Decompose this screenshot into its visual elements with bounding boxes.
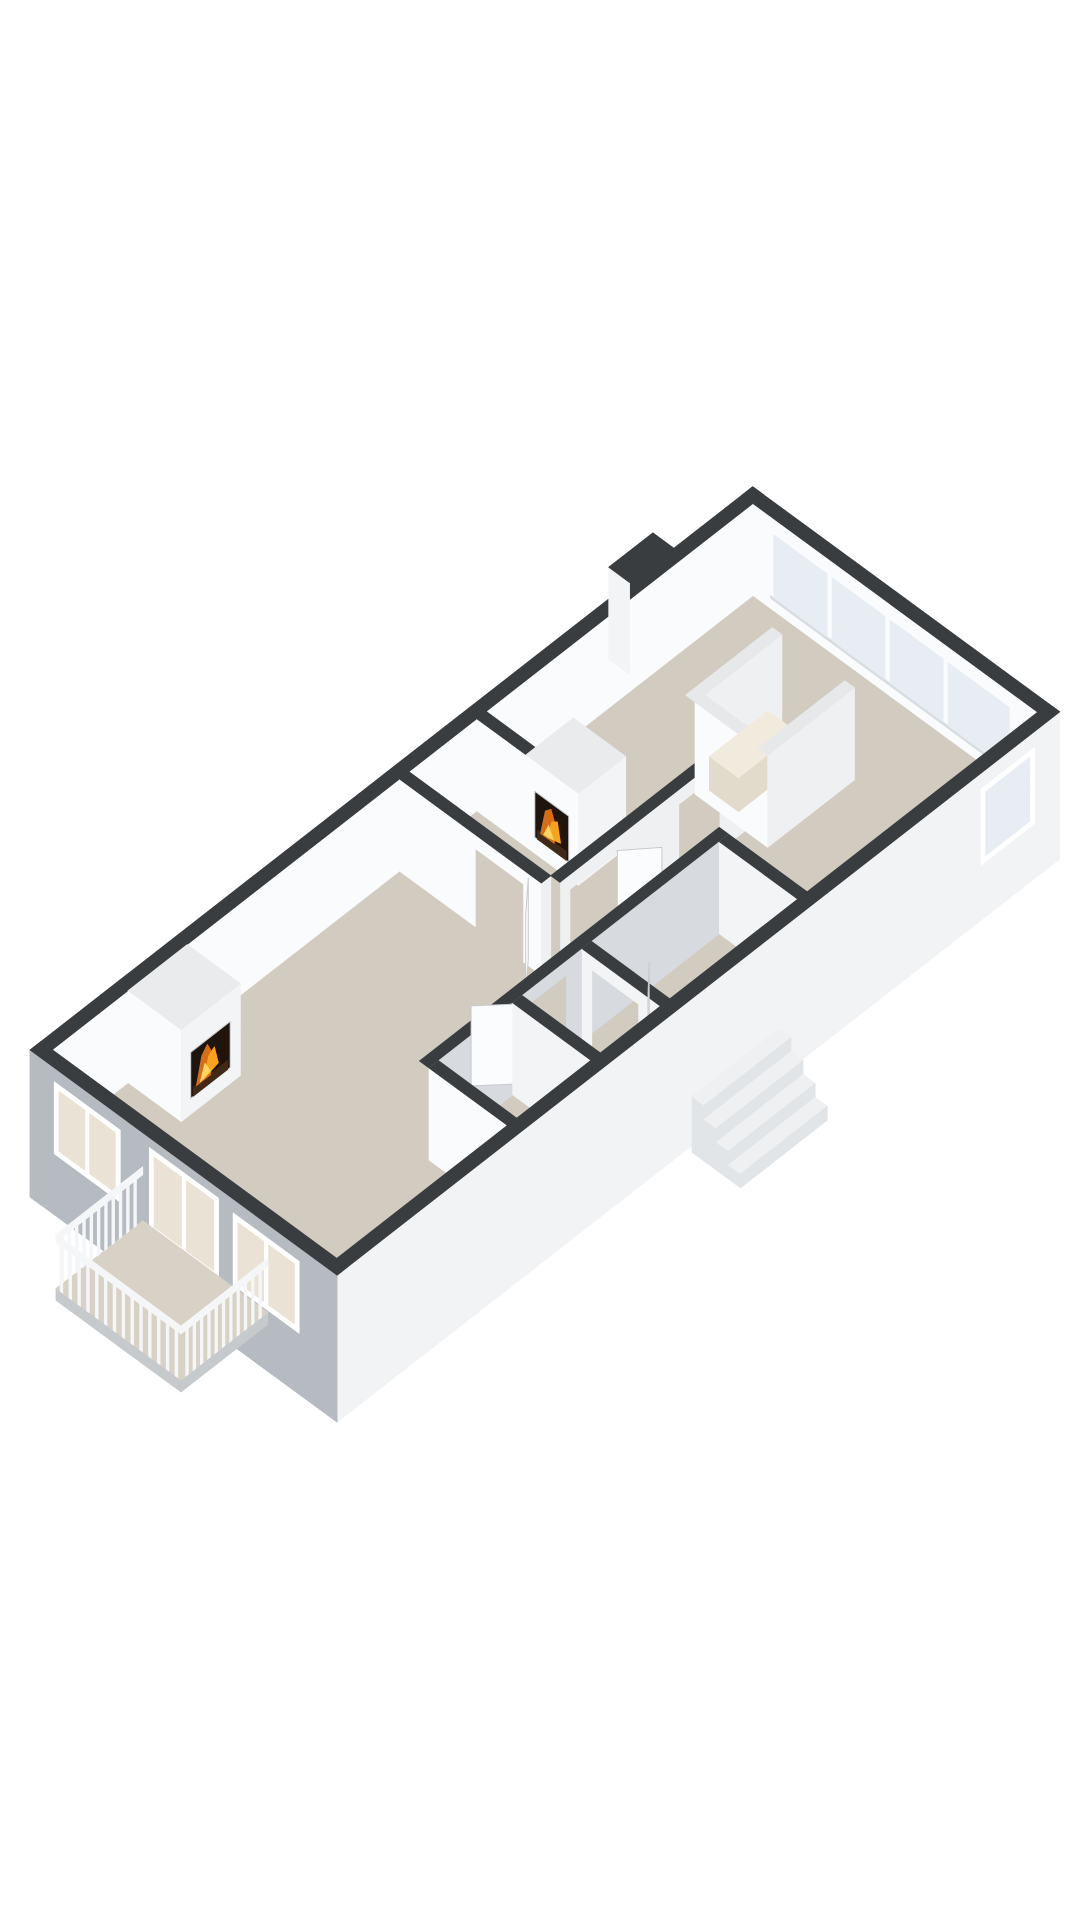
balcony-balusters-left-10 <box>127 1185 130 1233</box>
divider-c-face-a <box>582 949 592 1048</box>
balcony-balusters-front-10 <box>140 1304 143 1352</box>
door-leaf-3 <box>471 1004 517 1086</box>
balcony-balusters-right-6 <box>222 1300 225 1348</box>
balcony-balusters-right-7 <box>230 1294 233 1342</box>
balcony-balusters-front-11 <box>149 1310 152 1358</box>
balcony-balusters-front-14 <box>175 1330 178 1378</box>
page <box>0 0 1080 1920</box>
balcony-balusters-front-13 <box>166 1323 169 1371</box>
balcony-balusters-front-7 <box>113 1284 116 1332</box>
balcony-balusters-front-4 <box>87 1265 90 1313</box>
balcony-balusters-front-5 <box>95 1271 98 1319</box>
balcony-balusters-front-3 <box>78 1258 81 1306</box>
balcony-balusters-front-6 <box>104 1278 107 1326</box>
balcony-balusters-right-3 <box>200 1317 203 1365</box>
balcony-balusters-left-11 <box>134 1180 137 1228</box>
balcony-balusters-left-7 <box>105 1202 108 1250</box>
balcony-balusters-right-5 <box>215 1305 218 1353</box>
balcony-balusters-front-2 <box>69 1252 72 1300</box>
floorplan-3d-render <box>0 0 1080 1920</box>
balcony-balusters-right-8 <box>237 1288 240 1336</box>
balcony-balusters-front-1 <box>60 1245 63 1293</box>
balcony-balusters-left-5 <box>90 1214 93 1262</box>
balcony-balusters-right-2 <box>193 1323 196 1371</box>
balcony-balusters-front-8 <box>122 1291 125 1339</box>
balcony-balusters-right-9 <box>244 1283 247 1331</box>
balcony-balusters-right-1 <box>186 1328 189 1376</box>
balcony-balusters-left-6 <box>97 1208 100 1256</box>
balcony-balusters-left-8 <box>112 1197 115 1245</box>
balcony-balusters-front-12 <box>157 1317 160 1365</box>
balcony-balusters-right-4 <box>208 1311 211 1359</box>
balcony-balusters-left-9 <box>119 1191 122 1239</box>
balcony-balusters-right-10 <box>252 1277 255 1325</box>
balcony-balusters-right-11 <box>259 1271 262 1319</box>
balcony-balusters-front-9 <box>131 1297 134 1345</box>
exterior-chimney-stub <box>609 567 630 674</box>
